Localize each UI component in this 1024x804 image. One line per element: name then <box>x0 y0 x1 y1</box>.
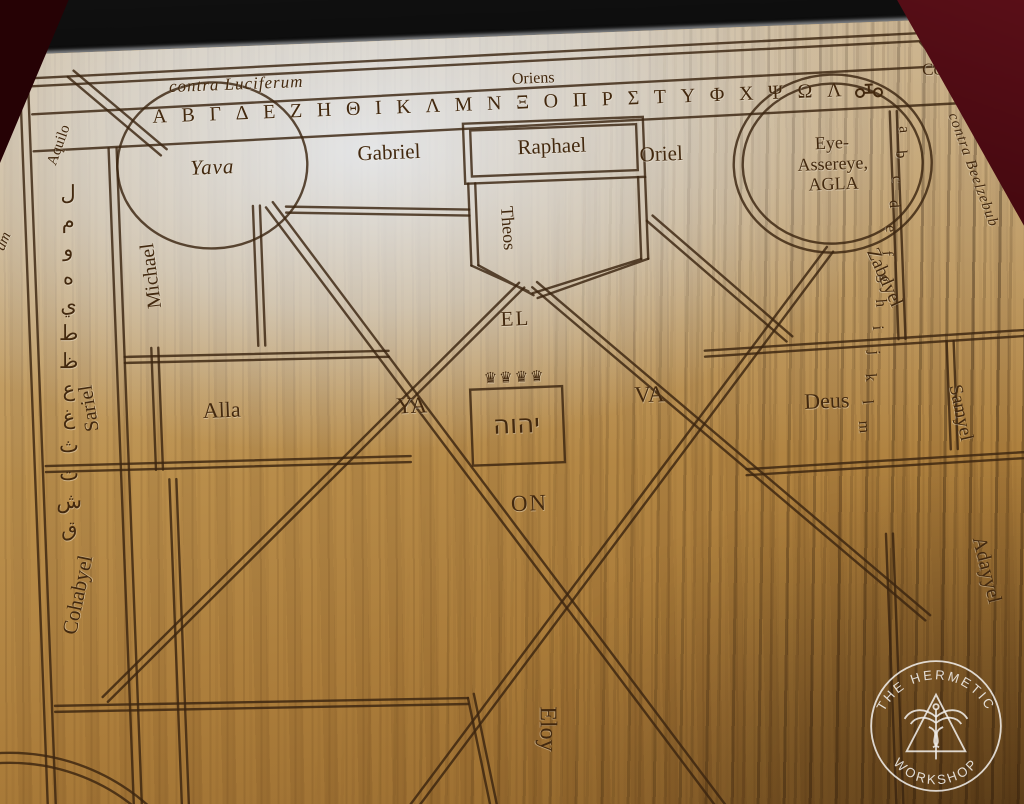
greek-letter: Τ <box>653 86 666 109</box>
script-letter: ث <box>59 433 79 457</box>
greek-letter: Ω <box>797 80 813 104</box>
greek-letter: Ψ <box>768 81 784 105</box>
circle-name-line: AGLA <box>808 173 859 196</box>
divine-name-va: VA <box>634 381 665 408</box>
left-border-script-column: لموهيطظعغثتشق <box>42 181 95 541</box>
photo-scene: contra Luciferum Oriens Cosol. ΑΒΓΔΕΖΗΘΙ… <box>0 0 1024 804</box>
top-border-center-label: Oriens <box>512 69 555 89</box>
script-letter: ل <box>60 181 75 205</box>
latin-letter: b <box>891 150 910 159</box>
name-raphael: Raphael <box>517 133 587 161</box>
latin-letter: m <box>854 420 873 434</box>
greek-letter: Α <box>152 105 167 129</box>
latin-letter: j <box>864 350 882 356</box>
name-alla: Alla <box>202 397 241 424</box>
name-oriel: Oriel <box>639 141 683 168</box>
greek-letter: Λ <box>827 79 842 103</box>
hermetic-workshop-watermark: THE HERMETIC WORKSHOP <box>860 650 1012 802</box>
script-letter: ت <box>59 461 79 485</box>
greek-letter: Κ <box>396 96 411 120</box>
greek-letter: Ζ <box>290 100 303 123</box>
greek-letter: Π <box>572 89 587 113</box>
name-eloy: Eloy <box>534 706 561 751</box>
greek-letter: Γ <box>209 103 221 126</box>
circle-name-line: Assereye, <box>797 152 868 175</box>
linked-rings-glyph <box>854 79 885 105</box>
script-letter: ظ <box>59 349 79 373</box>
greek-letter: Ρ <box>601 88 613 111</box>
latin-letter: a <box>895 126 913 134</box>
latin-letter: e <box>881 225 899 233</box>
latin-letter: k <box>861 373 880 382</box>
greek-letter: Υ <box>680 85 695 109</box>
script-letter: ش <box>56 489 82 513</box>
latin-letter: l <box>857 399 875 405</box>
script-letter: غ <box>63 405 76 429</box>
watermark-top-text: THE HERMETIC <box>874 667 999 713</box>
greek-letter: Μ <box>454 93 473 117</box>
name-theos: Theos <box>496 205 520 250</box>
caduceus-icon <box>905 695 968 760</box>
script-letter: م <box>62 209 75 233</box>
circle-name-line: Eye- <box>815 132 850 154</box>
tetragrammaton-crowns-icon: ♛♛♛♛ <box>483 367 545 387</box>
script-letter: ه <box>63 265 74 289</box>
greek-letter: Ξ <box>516 91 530 114</box>
left-circle-name: Yava <box>190 154 235 181</box>
latin-letter: i <box>868 325 886 331</box>
right-circle-names: Eye-Assereye,AGLA <box>796 131 869 196</box>
greek-letter: Δ <box>235 102 249 125</box>
greek-letter: Ε <box>263 101 276 124</box>
name-deus: Deus <box>804 387 850 415</box>
greek-letter: Λ <box>425 95 440 119</box>
greek-letter: Σ <box>627 87 640 110</box>
greek-letter: Ο <box>543 90 558 114</box>
greek-letter: Β <box>181 104 195 127</box>
divine-name-ya: YA <box>396 392 428 419</box>
tetragrammaton-text: יהוה <box>493 409 541 441</box>
greek-letter: Ι <box>375 97 383 120</box>
greek-letter: Η <box>316 99 331 123</box>
greek-letter: Θ <box>346 98 361 122</box>
script-letter: ع <box>63 377 76 401</box>
greek-letter: Ν <box>487 92 502 116</box>
script-letter: ق <box>61 517 77 541</box>
divine-name-el: EL <box>500 306 531 332</box>
greek-letter: Χ <box>739 83 754 107</box>
script-letter: و <box>63 237 73 261</box>
top-border-right-label: Cosol. <box>922 58 967 80</box>
latin-letter: c <box>888 175 906 183</box>
divine-name-on: ON <box>510 490 548 517</box>
script-letter: ط <box>59 321 79 345</box>
name-gabriel: Gabriel <box>357 139 421 166</box>
greek-letter: Φ <box>709 84 724 108</box>
latin-letter: d <box>884 199 903 208</box>
script-letter: ي <box>60 293 77 317</box>
